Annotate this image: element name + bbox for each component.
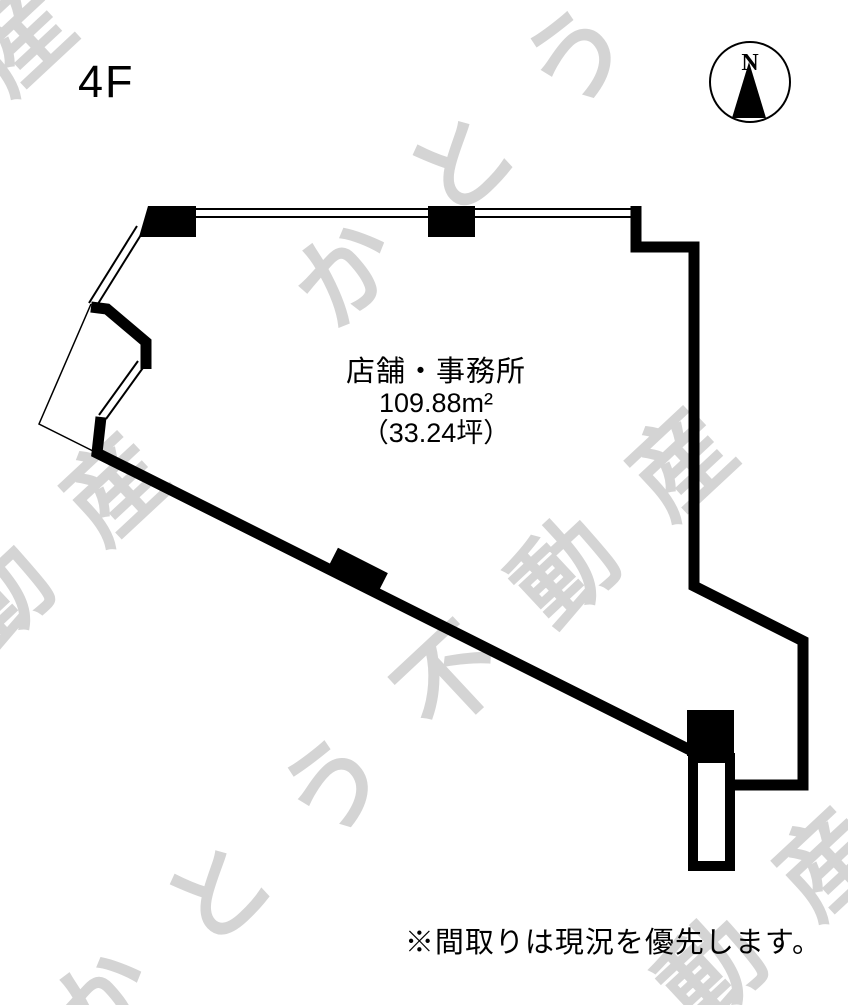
- floor-label: 4F: [78, 56, 135, 108]
- floorplan-drawing: N: [0, 0, 848, 1005]
- pillar-top-left: [139, 206, 196, 237]
- compass: N: [710, 42, 790, 122]
- room-area-tsubo: （33.24坪）: [286, 418, 586, 448]
- exterior-wall-right: [636, 206, 803, 785]
- room-name: 店舗・事務所: [286, 356, 586, 388]
- exterior-wall-left-zigzag: [91, 307, 146, 369]
- pillar-bottom-right: [687, 710, 734, 756]
- room-area-m2: 109.88m²: [286, 388, 586, 418]
- balcony-outline: [39, 304, 95, 452]
- window-left-upper: [89, 226, 144, 307]
- floorplan-page: かとう不動産 かとう不動産 かとう かとう不動産 かとう不動産 かとう かとう不…: [0, 0, 848, 1005]
- duct-shaft: [693, 758, 730, 866]
- floorplan-note: ※間取りは現況を優先します。: [405, 919, 822, 961]
- window-top: [150, 209, 634, 217]
- exterior-wall-bottom-diagonal: [97, 417, 700, 755]
- window-left-lower: [99, 361, 145, 419]
- pillar-top-center: [428, 206, 475, 237]
- compass-needle-icon: [732, 62, 766, 118]
- room-label: 店舗・事務所 109.88m² （33.24坪）: [286, 356, 586, 448]
